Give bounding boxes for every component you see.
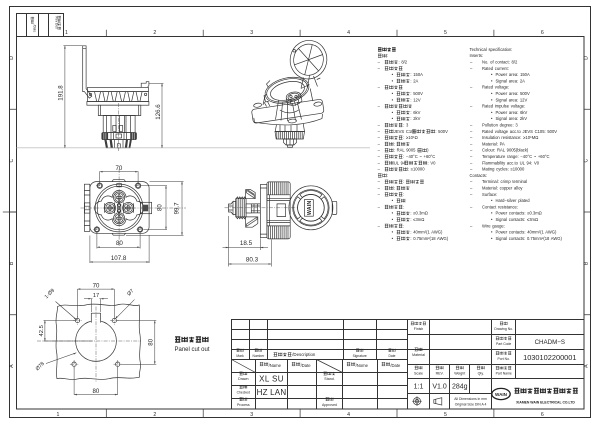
svg-text:A: A — [9, 364, 15, 368]
svg-text:HZ LAN: HZ LAN — [257, 388, 287, 397]
svg-text:: V0: : V0 — [428, 160, 437, 165]
svg-text:Power area: 6kV: Power area: 6kV — [496, 110, 528, 115]
svg-text::: : — [403, 192, 404, 197]
svg-text::: : — [394, 186, 395, 191]
svg-text:Signal contacts: 0.75mm²(18 AW: Signal contacts: 0.75mm²(18 AWG) — [496, 236, 563, 241]
svg-text::: : — [403, 204, 404, 209]
svg-text:Signal area: 12V: Signal area: 12V — [496, 97, 528, 102]
svg-text:6: 6 — [541, 30, 544, 36]
svg-text:107.8: 107.8 — [111, 255, 127, 262]
svg-text:/Nome: /Nome — [356, 363, 369, 368]
svg-text:: 2kV: : 2kV — [410, 116, 420, 121]
svg-text:70: 70 — [93, 282, 100, 289]
svg-text:XIAMEN WAIN ELECTRICAL CO.LTD: XIAMEN WAIN ELECTRICAL CO.LTD — [516, 400, 575, 404]
svg-text:: 40mm²(1 AWG): : 40mm²(1 AWG) — [410, 230, 443, 235]
svg-text:5: 5 — [444, 412, 447, 418]
svg-text:: 3: : 3 — [403, 123, 409, 128]
svg-text:Flammability acc.to UL 94: V0: Flammability acc.to UL 94: V0 — [482, 160, 540, 165]
svg-text:Signal area: 2A: Signal area: 2A — [496, 78, 526, 83]
svg-text:CHADM−S: CHADM−S — [535, 339, 565, 346]
svg-text:Panel cut out: Panel cut out — [175, 347, 210, 353]
svg-text:5: 5 — [444, 30, 447, 36]
svg-text:No. of contact: 8/2: No. of contact: 8/2 — [482, 60, 518, 65]
svg-text:: 6kV: : 6kV — [410, 110, 420, 115]
svg-text:Port No.: Port No. — [497, 357, 509, 361]
svg-text:Rated current:: Rated current: — [482, 66, 509, 71]
svg-text:Rev Des: Rev Des — [54, 17, 58, 30]
svg-text:: 150A: : 150A — [410, 72, 423, 77]
svg-text:284g: 284g — [452, 384, 468, 391]
svg-text::: : — [387, 173, 388, 178]
svg-text:4: 4 — [347, 30, 350, 36]
svg-text:Drawing No.: Drawing No. — [494, 327, 513, 331]
svg-text:: ≥10⁵Ω: : ≥10⁵Ω — [403, 135, 418, 140]
svg-text:Date: Date — [389, 354, 396, 358]
svg-text:D: D — [9, 56, 15, 60]
svg-text:: 0.75mm²(18 AWG): : 0.75mm²(18 AWG) — [410, 236, 448, 241]
svg-text:Pollution degree: 3: Pollution degree: 3 — [482, 123, 518, 128]
svg-text:Weight: Weight — [454, 371, 465, 375]
svg-text:Rated impulse voltage:: Rated impulse voltage: — [482, 104, 525, 109]
svg-text:Rated voltage:: Rated voltage: — [482, 85, 509, 90]
svg-text:Material: Material — [412, 353, 425, 357]
svg-text:A: A — [584, 364, 590, 368]
svg-text:70: 70 — [115, 165, 122, 172]
svg-text:WAIN: WAIN — [307, 201, 313, 215]
svg-text:Part Code: Part Code — [496, 342, 511, 346]
svg-text:: 500V: : 500V — [410, 91, 423, 96]
svg-text:REV.: REV. — [436, 371, 444, 375]
svg-text:Mating cycles: ≥10000: Mating cycles: ≥10000 — [482, 167, 525, 172]
svg-text:Inserts:: Inserts: — [470, 53, 484, 58]
svg-text:191.8: 191.8 — [58, 85, 65, 101]
svg-text:Scale: Scale — [414, 371, 423, 375]
svg-text:V1.0: V1.0 — [432, 384, 447, 391]
svg-text:Wire gauge:: Wire gauge: — [482, 223, 505, 228]
svg-text:Original Size DIN A 4: Original Size DIN A 4 — [455, 403, 487, 407]
svg-text:Drawn: Drawn — [238, 377, 248, 381]
svg-text:: 500V: : 500V — [435, 129, 448, 134]
svg-text:: ≤3mΩ: : ≤3mΩ — [410, 217, 424, 222]
svg-text:80: 80 — [147, 338, 154, 345]
svg-text::: : — [403, 179, 404, 184]
svg-text:Terminal: crimp terminal: Terminal: crimp terminal — [482, 179, 527, 184]
svg-text:XL SU: XL SU — [259, 374, 284, 383]
svg-text::: : — [387, 53, 388, 58]
svg-text:Signature: Signature — [353, 354, 367, 358]
svg-text:WAIN: WAIN — [495, 392, 508, 397]
svg-text:Number: Number — [252, 354, 265, 358]
svg-text:: RAL 9005 (: : RAL 9005 ( — [394, 148, 419, 153]
svg-text:Material: PA: Material: PA — [482, 141, 505, 146]
svg-text:Checked: Checked — [237, 391, 250, 395]
svg-text::: : — [394, 141, 395, 146]
svg-text:2: 2 — [153, 30, 156, 36]
svg-text:80.3: 80.3 — [246, 257, 259, 264]
svg-text:Signal area: 2kV: Signal area: 2kV — [496, 116, 528, 121]
svg-text:: ≥10000: : ≥10000 — [408, 167, 425, 172]
svg-text:Qty.: Qty. — [478, 371, 484, 375]
svg-text:Power contacts: 40mm²(1 AWG): Power contacts: 40mm²(1 AWG) — [496, 230, 557, 235]
svg-text:1: 1 — [56, 412, 59, 418]
svg-text:18.5: 18.5 — [240, 240, 253, 247]
svg-text:Power area: 500V: Power area: 500V — [496, 91, 530, 96]
svg-text:/Name: /Name — [269, 363, 282, 368]
svg-text:Rated voltage acc.to JEVS C105: Rated voltage acc.to JEVS C105: 500V — [482, 129, 557, 134]
svg-text:C: C — [9, 158, 15, 162]
svg-text:1030102200001: 1030102200001 — [523, 353, 576, 362]
svg-text:Surface:: Surface: — [482, 192, 497, 197]
svg-text:80: 80 — [157, 204, 164, 211]
svg-text:Colour: RAL 9005(black): Colour: RAL 9005(black) — [482, 148, 529, 153]
svg-text:/Date: /Date — [301, 363, 312, 368]
svg-text:Part Name: Part Name — [496, 372, 512, 376]
svg-text:3: 3 — [250, 30, 253, 36]
svg-text:/Description: /Description — [292, 352, 316, 357]
svg-text:Approved: Approved — [322, 403, 337, 407]
svg-text:80: 80 — [93, 388, 100, 395]
svg-text:1:1: 1:1 — [414, 384, 424, 391]
svg-text:Contact resistance:: Contact resistance: — [482, 204, 518, 209]
svg-text:/Date: /Date — [33, 25, 37, 33]
svg-text:99.7: 99.7 — [174, 202, 181, 215]
svg-text:Insulation resistance: ≥10⁵MΩ: Insulation resistance: ≥10⁵MΩ — [482, 135, 538, 140]
svg-text:Power contacts: ≤0.3mΩ: Power contacts: ≤0.3mΩ — [496, 211, 542, 216]
svg-text:Process: Process — [237, 403, 250, 407]
svg-text:42.5: 42.5 — [39, 325, 45, 336]
svg-text:: 12V: : 12V — [410, 97, 420, 102]
svg-text:Signal contacts: ≤3mΩ: Signal contacts: ≤3mΩ — [496, 217, 539, 222]
svg-text:: ≤0.3mΩ: : ≤0.3mΩ — [410, 211, 427, 216]
svg-text:D: D — [584, 56, 590, 60]
svg-text:B: B — [9, 261, 15, 265]
svg-text:Technical specification:: Technical specification: — [470, 47, 513, 52]
svg-text:Stand.: Stand. — [324, 377, 334, 381]
svg-text:/Date: /Date — [390, 363, 401, 368]
svg-text:C: C — [584, 158, 590, 162]
svg-text:UL 94: UL 94 — [394, 160, 406, 165]
svg-text::: : — [403, 223, 404, 228]
svg-text:2: 2 — [153, 412, 156, 418]
svg-text:1: 1 — [65, 30, 68, 36]
svg-text:Finish: Finish — [414, 327, 424, 331]
svg-text:80: 80 — [116, 240, 123, 247]
svg-text:Mark: Mark — [236, 354, 244, 358]
svg-text:All Dimensions in mm: All Dimensions in mm — [454, 397, 487, 401]
svg-text:3: 3 — [250, 412, 253, 418]
svg-text:Contacts:: Contacts: — [470, 173, 488, 178]
svg-text:Temperature range: −40°C ~ +60: Temperature range: −40°C ~ +60°C — [482, 154, 550, 159]
svg-text:: −40°C ~ +60°C: : −40°C ~ +60°C — [403, 154, 435, 159]
svg-text:: 8/2: : 8/2 — [398, 60, 407, 65]
svg-text:17: 17 — [93, 293, 99, 299]
svg-text:B: B — [584, 261, 590, 265]
svg-text:: 2A: : 2A — [410, 78, 418, 83]
svg-text:Material: copper alloy: Material: copper alloy — [482, 186, 523, 191]
svg-text:126.6: 126.6 — [155, 104, 162, 120]
svg-text:Hard−silver plated: Hard−silver plated — [496, 198, 531, 203]
svg-text:6: 6 — [541, 412, 544, 418]
svg-text:4: 4 — [347, 412, 350, 418]
svg-text:Power area: 150A: Power area: 150A — [496, 72, 530, 77]
